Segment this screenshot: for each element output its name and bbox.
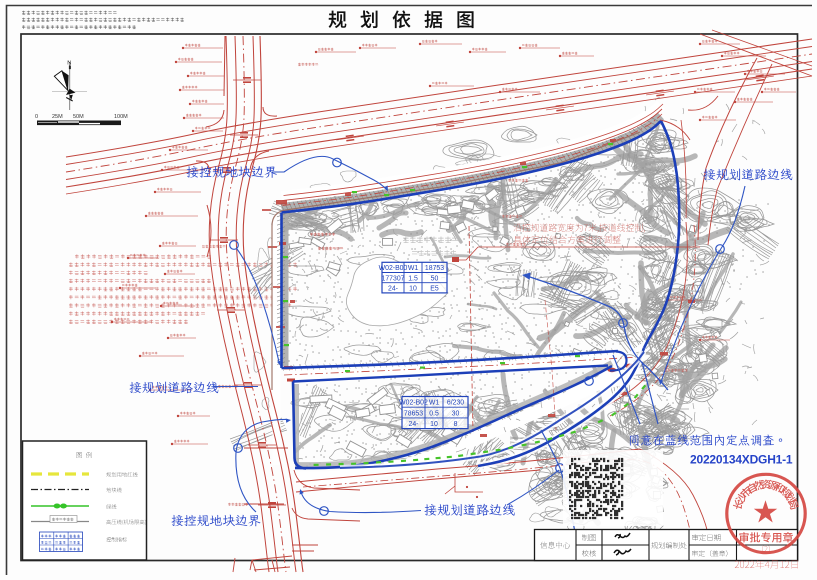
svg-text:24-: 24-: [388, 286, 398, 293]
svg-text:18753: 18753: [425, 265, 444, 272]
svg-text:8: 8: [454, 421, 458, 428]
svg-text:20220134XDGH1-1: 20220134XDGH1-1: [690, 453, 793, 467]
svg-text:24-: 24-: [409, 421, 419, 428]
svg-text:W02-B00: W02-B00: [379, 265, 408, 272]
svg-text:78653: 78653: [404, 410, 423, 417]
svg-text:6/230: 6/230: [447, 400, 464, 407]
svg-text:50: 50: [431, 275, 439, 282]
svg-text:0.5: 0.5: [429, 410, 439, 417]
svg-text:E5: E5: [430, 286, 439, 293]
svg-text:10: 10: [409, 286, 417, 293]
svg-text:W1: W1: [408, 265, 419, 272]
svg-text:25M: 25M: [52, 114, 63, 120]
svg-text:0: 0: [35, 114, 38, 120]
svg-text:W1: W1: [429, 400, 440, 407]
svg-text:177307: 177307: [382, 275, 405, 282]
svg-text:100M: 100M: [114, 114, 128, 120]
svg-text:1.5: 1.5: [408, 275, 418, 282]
svg-text:50M: 50M: [73, 114, 84, 120]
svg-text:30: 30: [452, 410, 460, 417]
svg-text:10: 10: [430, 421, 438, 428]
svg-text:W02-B02: W02-B02: [399, 400, 428, 407]
